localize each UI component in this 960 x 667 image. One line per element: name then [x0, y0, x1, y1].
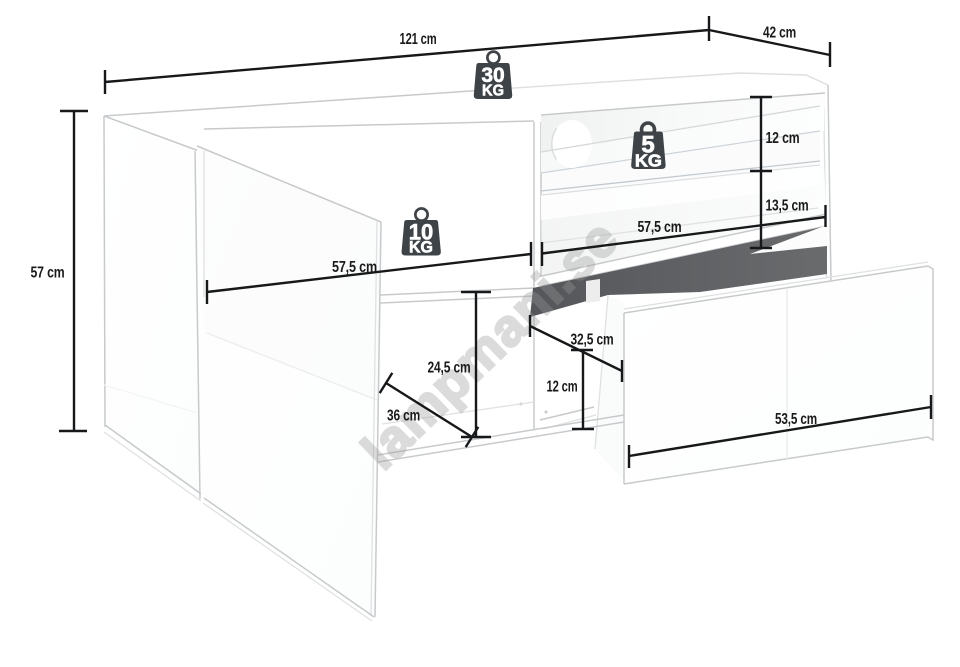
svg-text:36 cm: 36 cm [387, 408, 420, 425]
svg-text:53,5 cm: 53,5 cm [775, 411, 817, 428]
svg-text:57,5 cm: 57,5 cm [638, 219, 682, 236]
svg-text:12 cm: 12 cm [766, 130, 800, 147]
svg-text:KG: KG [482, 83, 504, 100]
svg-text:KG: KG [409, 238, 433, 257]
svg-text:13,5 cm: 13,5 cm [766, 198, 809, 215]
svg-text:121 cm: 121 cm [400, 31, 437, 48]
svg-text:KG: KG [635, 151, 662, 171]
svg-text:32,5 cm: 32,5 cm [571, 332, 614, 349]
svg-text:12 cm: 12 cm [547, 379, 578, 396]
svg-text:24,5 cm: 24,5 cm [428, 360, 471, 377]
svg-text:42 cm: 42 cm [763, 25, 796, 42]
svg-text:57 cm: 57 cm [31, 265, 65, 282]
svg-text:57,5 cm: 57,5 cm [332, 259, 377, 276]
